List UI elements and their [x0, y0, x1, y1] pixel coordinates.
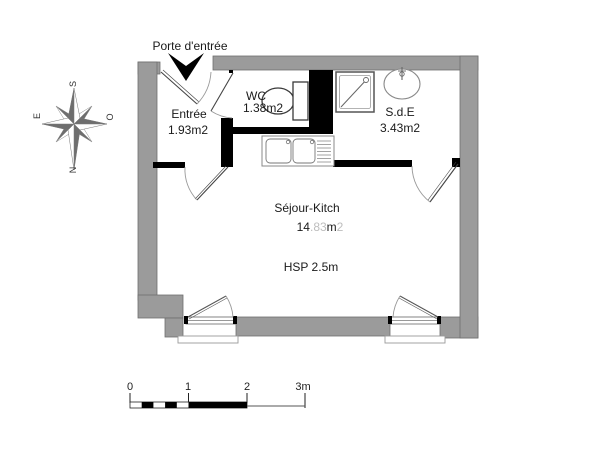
scale-bar: 0 1 2 3m [127, 381, 311, 408]
wall-left [138, 62, 157, 300]
entrance-label: Porte d'entrée [152, 39, 227, 53]
room-area-entree: 1.93m2 [168, 123, 208, 137]
sde-door [412, 162, 458, 202]
window-left-leaf [188, 296, 226, 317]
partition-wc-right [309, 70, 333, 134]
partition-entree-bottom [153, 162, 185, 168]
wall-top [213, 56, 478, 70]
wall-right [460, 56, 478, 338]
entrance-arrow-icon [168, 53, 204, 81]
scale-tick-label-1: 1 [185, 381, 191, 393]
sejour-left-door [185, 166, 228, 200]
wall-left-step-b [165, 318, 183, 337]
compass-letter-bottom: N [68, 167, 78, 174]
room-label-sejour: Séjour-Kitch [274, 201, 339, 215]
window-sills [178, 336, 445, 343]
window-left [184, 296, 237, 324]
room-area-wc: 1.38m2 [243, 101, 283, 115]
window-left-arc [226, 296, 233, 317]
partition-entree-stub [221, 118, 233, 167]
room-area-sejour: 14.83m2 [297, 220, 344, 234]
scale-tick-label-3: 3m [295, 381, 310, 393]
window-sill-left [178, 336, 238, 343]
floorplan-page: Porte d'entrée Entrée 1.93m2 WC 1.38m2 S… [0, 0, 600, 450]
window-sill-right [385, 336, 445, 343]
floorplan-canvas: Porte d'entrée Entrée 1.93m2 WC 1.38m2 S… [0, 0, 600, 450]
partition-wc-door-jamb [229, 70, 233, 73]
shower-icon [336, 72, 374, 112]
sde-door-arc [412, 166, 430, 202]
compass-rose: S E O N [32, 81, 115, 173]
scale-tick-label-0: 0 [127, 381, 133, 393]
wall-left-step-a [138, 295, 183, 318]
window-right-leaf [400, 296, 438, 317]
partition-wc-bottom [233, 127, 309, 134]
compass-letter-left: E [32, 113, 42, 119]
compass-letter-right: O [105, 113, 115, 120]
wc-door-arc [211, 111, 232, 118]
room-area-sde: 3.43m2 [380, 121, 420, 135]
sejour-left-door-arc [185, 167, 197, 200]
compass-letter-top: S [68, 81, 78, 87]
window-right [388, 296, 441, 324]
ceiling-height-note: HSP 2.5m [284, 260, 338, 274]
wall-bottom-middle [236, 317, 390, 336]
kitchen-sink-icon [262, 136, 334, 166]
room-label-sde: S.d.E [385, 105, 414, 119]
window-right-arc [393, 296, 400, 317]
wc-door [211, 73, 233, 118]
washbasin-icon [384, 67, 420, 99]
partition-sde-bottom [333, 160, 412, 167]
room-label-entree: Entrée [171, 107, 207, 121]
entrance-door-arc [197, 72, 211, 104]
scale-tick-label-2: 2 [244, 381, 250, 393]
